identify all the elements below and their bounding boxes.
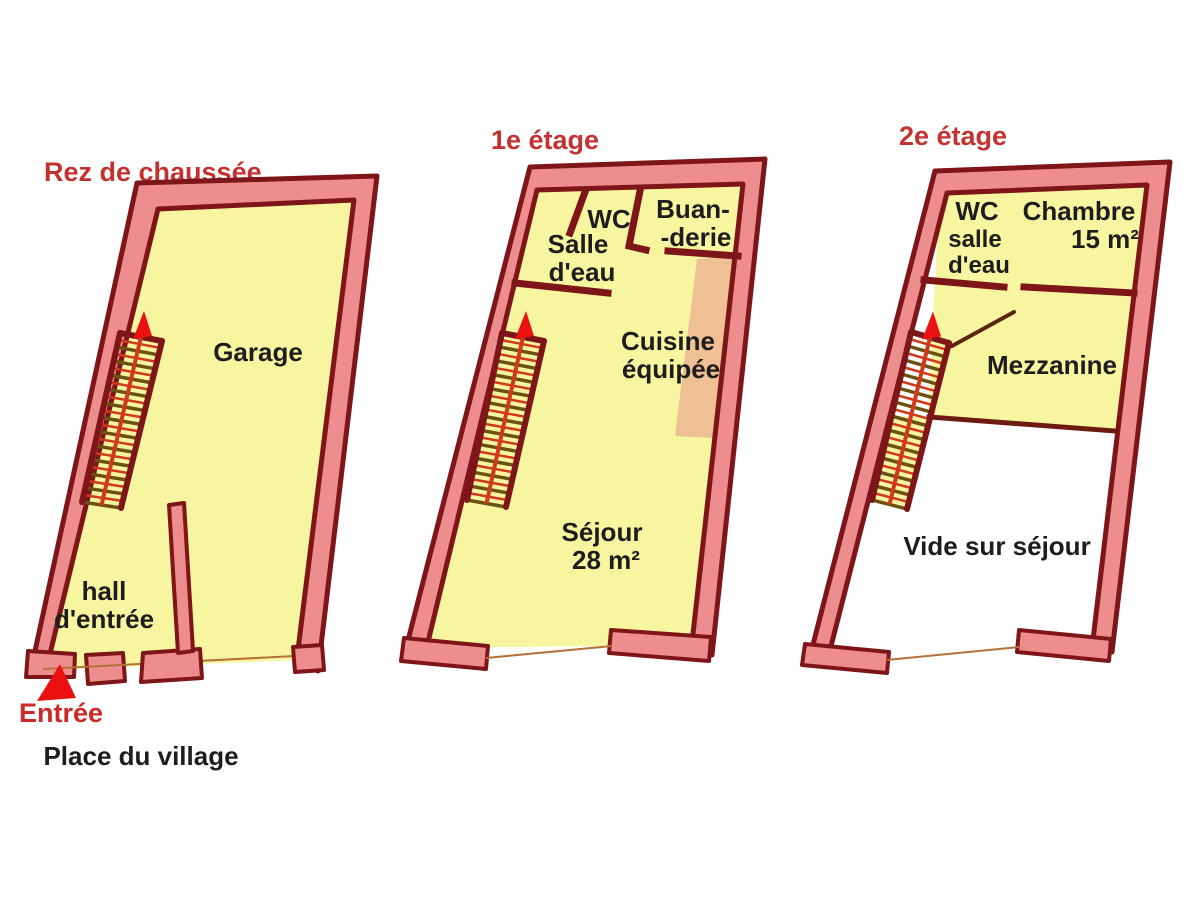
label-mezzanine: Mezzanine	[987, 350, 1117, 380]
label-buanderie-line2: -derie	[661, 222, 732, 252]
label-sejour-line1: Séjour	[562, 517, 643, 547]
label-wc-1er: WC	[587, 204, 631, 234]
label-place-du-village: Place du village	[43, 741, 238, 771]
ground-entry-pillar	[86, 653, 125, 684]
label-salle2-line1: salle	[948, 226, 1001, 253]
ground-left-wall-foot	[26, 651, 75, 677]
floor-deuxieme-etage: 2e étage WC salle d'eau Chambre 15 m² Me…	[802, 121, 1170, 673]
label-hall-line1: hall	[82, 576, 127, 606]
ground-right-wall-foot	[293, 645, 324, 672]
floor-title-premier-etage: 1e étage	[491, 125, 599, 155]
label-vide-sur-sejour: Vide sur séjour	[903, 531, 1090, 561]
floor-title-deuxieme-etage: 2e étage	[899, 121, 1007, 151]
label-sejour-line2: 28 m²	[572, 545, 640, 575]
label-cuisine-line1: Cuisine	[621, 326, 715, 356]
label-chambre-line2: 15 m²	[1071, 224, 1139, 254]
floor-rez-de-chaussee: Rez de chaussée Garage hall d'entrée Ent…	[19, 157, 377, 771]
label-salle2-line2: d'eau	[948, 252, 1010, 279]
label-wc-2e: WC	[955, 196, 999, 226]
label-buanderie-line1: Buan-	[656, 194, 730, 224]
floor-premier-etage: 1e étage Salle d'eau WC Buan- -derie Cui…	[401, 125, 765, 669]
label-entree: Entrée	[19, 698, 103, 728]
label-cuisine-line2: équipée	[622, 354, 720, 384]
second-left-wall-foot	[802, 644, 889, 673]
label-chambre-line1: Chambre	[1023, 196, 1136, 226]
ground-divider-wall-foot	[141, 649, 202, 682]
floor-plan-image: Rez de chaussée Garage hall d'entrée Ent…	[0, 0, 1200, 900]
label-garage: Garage	[213, 337, 303, 367]
second-floor-edge-line	[887, 647, 1019, 660]
first-floor-edge-line	[486, 646, 612, 658]
label-salle-line2: d'eau	[549, 257, 616, 287]
floor-plan-page: Rez de chaussée Garage hall d'entrée Ent…	[0, 0, 1200, 900]
label-hall-line2: d'entrée	[54, 604, 154, 634]
first-right-wall-foot	[609, 630, 711, 661]
